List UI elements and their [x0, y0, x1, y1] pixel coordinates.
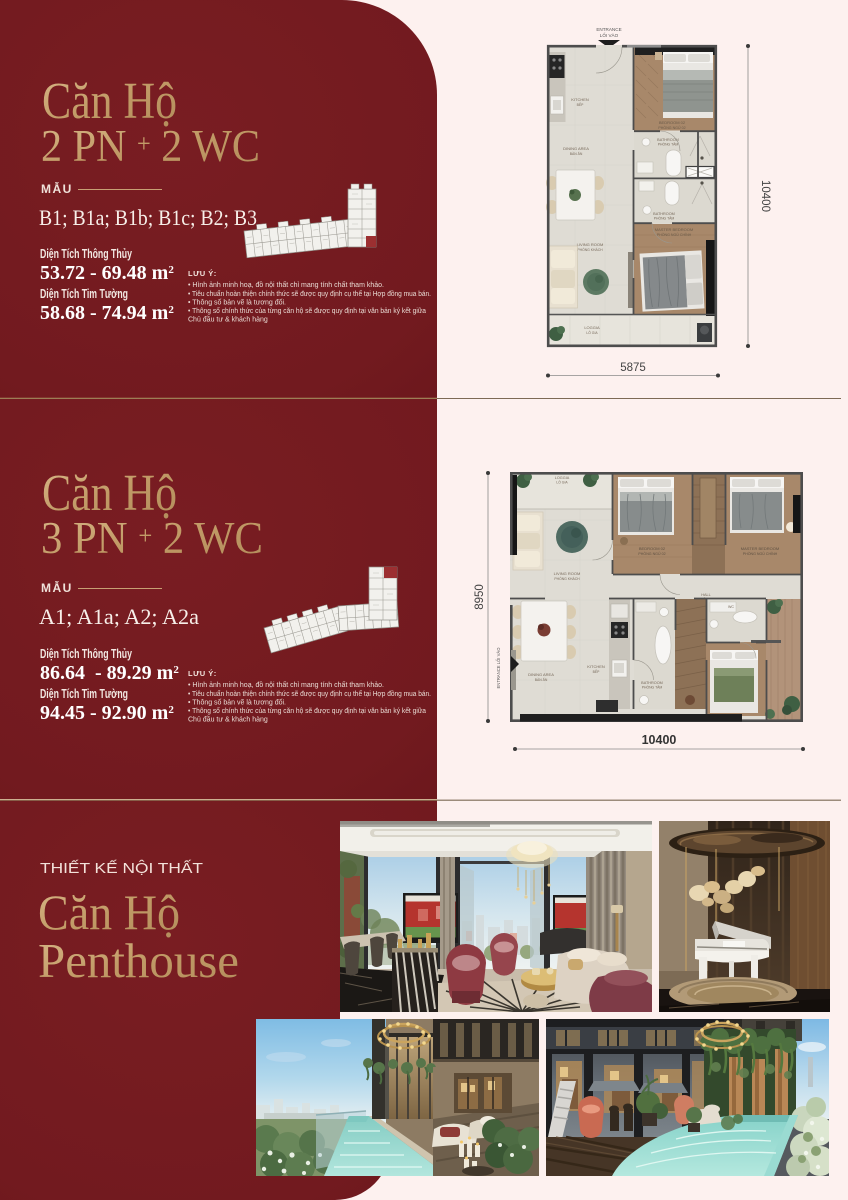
svg-text:MASTER BEDROOM: MASTER BEDROOM — [655, 227, 693, 232]
svg-text:KITCHEN: KITCHEN — [587, 664, 605, 669]
svg-text:Diện Tích Tim Tường: Diện Tích Tim Tường — [40, 287, 128, 301]
svg-text:Căn Hộ: Căn Hộ — [38, 884, 180, 940]
svg-text:10400: 10400 — [642, 733, 677, 747]
svg-text:BATHROOM: BATHROOM — [653, 212, 675, 216]
svg-text:ENTRANCE: ENTRANCE — [596, 27, 621, 32]
svg-text:LỐI VÀO: LỐI VÀO — [600, 32, 619, 38]
svg-text:86.64 - 89.29 m2: 86.64 - 89.29 m2 — [40, 662, 179, 684]
svg-text:LOGGIA: LOGGIA — [555, 476, 570, 480]
svg-text:THIẾT KẾ NỘI THẤT: THIẾT KẾ NỘI THẤT — [40, 860, 203, 877]
svg-text:WC: WC — [728, 605, 734, 609]
svg-text:PHÒNG NGỦ 02: PHÒNG NGỦ 02 — [638, 551, 665, 556]
svg-text:LƯU Ý:: LƯU Ý: — [188, 669, 217, 678]
svg-text:LÔ GIA: LÔ GIA — [556, 480, 568, 485]
svg-text:5875: 5875 — [620, 362, 646, 374]
svg-text:Chủ đầu tư & khách hàng: Chủ đầu tư & khách hàng — [188, 715, 268, 724]
svg-text:PHÒNG KHÁCH: PHÒNG KHÁCH — [554, 576, 580, 581]
svg-text:MẪU: MẪU — [41, 580, 73, 595]
svg-text:Diện Tích Thông Thủy: Diện Tích Thông Thủy — [40, 647, 132, 661]
svg-text:PHÒNG NGỦ CHÍNH: PHÒNG NGỦ CHÍNH — [657, 232, 692, 237]
svg-text:• Thông số chính thức của từng: • Thông số chính thức của từng căn hộ sẽ… — [188, 706, 426, 715]
svg-text:PHÒNG TẮM: PHÒNG TẮM — [654, 216, 675, 221]
svg-text:BEDROOM 02: BEDROOM 02 — [639, 546, 666, 551]
svg-text:10400: 10400 — [759, 180, 771, 212]
svg-text:BATHROOM: BATHROOM — [641, 681, 663, 685]
svg-text:Diện Tích Tim Tường: Diện Tích Tim Tường — [40, 687, 128, 701]
svg-text:Penthouse: Penthouse — [38, 933, 239, 988]
svg-text:LOGGIA: LOGGIA — [584, 325, 600, 330]
svg-text:BÀN ĂN: BÀN ĂN — [535, 678, 548, 682]
svg-text:DINING AREA: DINING AREA — [563, 146, 589, 151]
svg-text:BẾP: BẾP — [593, 669, 601, 674]
svg-text:BEDROOM 02: BEDROOM 02 — [659, 120, 686, 125]
svg-text:Chủ đầu tư & khách hàng: Chủ đầu tư & khách hàng — [188, 315, 268, 324]
svg-text:BẾP: BẾP — [577, 102, 585, 107]
svg-text:LÔ GIA: LÔ GIA — [586, 330, 598, 335]
svg-text:PHÒNG NGỦ 02: PHÒNG NGỦ 02 — [658, 125, 685, 130]
svg-text:• Tiêu chuẩn hoàn thiện chính: • Tiêu chuẩn hoàn thiện chính thức sẽ đư… — [188, 289, 431, 298]
svg-text:• Thông số bản vẽ là tương đối: • Thông số bản vẽ là tương đối. — [188, 698, 286, 707]
svg-text:58.68 - 74.94 m2: 58.68 - 74.94 m2 — [40, 302, 174, 324]
svg-text:LIVING ROOM: LIVING ROOM — [554, 571, 581, 576]
svg-text:53.72 - 69.48 m2: 53.72 - 69.48 m2 — [40, 262, 174, 284]
svg-text:PHÒNG TẮM: PHÒNG TẮM — [658, 142, 679, 147]
svg-text:• Tiêu chuẩn hoàn thiện chính: • Tiêu chuẩn hoàn thiện chính thức sẽ đư… — [188, 689, 431, 698]
svg-text:8950: 8950 — [474, 584, 486, 610]
svg-text:DINING AREA: DINING AREA — [528, 672, 554, 677]
svg-text:B1; B1a; B1b; B1c; B2; B3: B1; B1a; B1b; B1c; B2; B3 — [39, 205, 257, 230]
svg-text:• Thông số bản vẽ là tương đối: • Thông số bản vẽ là tương đối. — [188, 298, 286, 307]
svg-text:• Thông số chính thức của từng: • Thông số chính thức của từng căn hộ sẽ… — [188, 306, 426, 315]
svg-text:HALL: HALL — [701, 593, 711, 597]
svg-text:PHÒNG TẮM: PHÒNG TẮM — [642, 685, 663, 690]
svg-text:94.45 - 92.90 m2: 94.45 - 92.90 m2 — [40, 702, 174, 724]
svg-text:LIVING ROOM: LIVING ROOM — [577, 242, 604, 247]
svg-text:ENTRANCE LỐI VÀO: ENTRANCE LỐI VÀO — [496, 647, 501, 689]
svg-text:MẪU: MẪU — [41, 181, 73, 196]
svg-text:LƯU Ý:: LƯU Ý: — [188, 269, 217, 278]
svg-text:MASTER BEDROOM: MASTER BEDROOM — [741, 546, 779, 551]
svg-text:3 PN + 2 WC: 3 PN + 2 WC — [41, 513, 263, 563]
svg-text:• Hình ảnh minh hoạ, đồ nội th: • Hình ảnh minh hoạ, đồ nội thất chỉ man… — [188, 280, 384, 289]
svg-text:A1; A1a; A2; A2a: A1; A1a; A2; A2a — [39, 604, 199, 629]
svg-text:KITCHEN: KITCHEN — [571, 97, 589, 102]
svg-text:• Hình ảnh minh hoạ, đồ nội th: • Hình ảnh minh hoạ, đồ nội thất chỉ man… — [188, 680, 384, 689]
svg-text:BÀN ĂN: BÀN ĂN — [570, 152, 583, 156]
svg-text:2 PN + 2 WC: 2 PN + 2 WC — [41, 121, 260, 171]
svg-text:PHÒNG KHÁCH: PHÒNG KHÁCH — [577, 247, 603, 252]
svg-text:PHÒNG NGỦ CHÍNH: PHÒNG NGỦ CHÍNH — [743, 551, 778, 556]
svg-text:Diện Tích Thông Thủy: Diện Tích Thông Thủy — [40, 247, 132, 261]
